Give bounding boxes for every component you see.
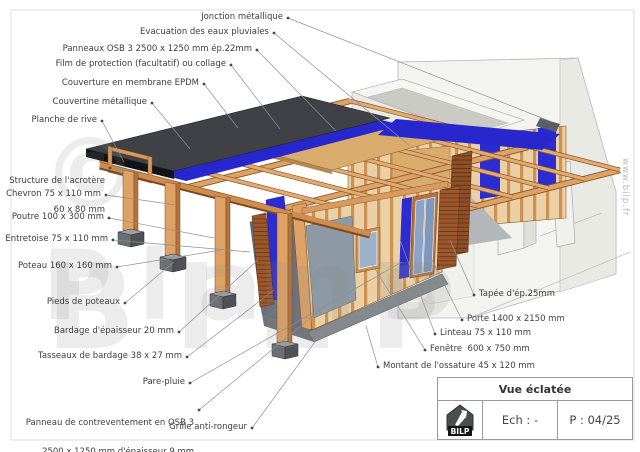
bilp-logo: BILP (438, 401, 483, 439)
label-evacuation-eaux: Evacuation des eaux pluviales (0, 28, 269, 38)
label-fenetre: Fenêtre 600 x 750 mm (430, 345, 530, 355)
label-line: 2500 x 1250 mm d'épaisseur 9 mm (0, 448, 194, 452)
post (215, 196, 226, 294)
plan-page: © Plans BILP www.bilp.fr Jonction métall… (0, 0, 640, 452)
label-planche-de-rive: Planche de rive (0, 116, 97, 126)
label-tapee: Tapée d'ép.25mm (479, 290, 555, 300)
leader-line (366, 326, 378, 367)
label-linteau: Linteau 75 x 110 mm (440, 329, 531, 339)
post (165, 182, 176, 257)
label-pare-pluie: Pare-pluie (0, 378, 185, 388)
label-montant-ossature: Montant de l'ossature 45 x 120 mm (383, 362, 535, 372)
label-poteau: Poteau 160 x 160 mm (0, 262, 112, 272)
label-porte: Porte 1400 x 2150 mm (467, 315, 565, 325)
label-panneaux-osb: Panneaux OSB 3 2500 x 1250 mm ép.22mm (0, 45, 252, 55)
label-couvertine: Couvertine métallique (0, 98, 147, 108)
label-bardage: Bardage d'épaisseur 20 mm (0, 327, 174, 337)
bardage-cladding (437, 186, 460, 270)
label-entretoise: Entretoise 75 x 110 mm (0, 235, 108, 245)
label-film-protection: Film de protection (facultatif) ou colla… (0, 60, 226, 70)
label-line: Structure de l'acrotère (0, 177, 105, 187)
label-grille-anti-rongeur: Grille anti-rongeur (0, 423, 247, 433)
post (277, 212, 288, 344)
label-tasseaux: Tasseaux de bardage 38 x 27 mm (0, 352, 182, 362)
bilp-logo-icon: BILP (445, 404, 475, 437)
leader-line (125, 262, 174, 303)
label-couverture-epdm: Couverture en membrane EPDM (0, 79, 199, 89)
drawing-title: Vue éclatée (438, 378, 632, 401)
logo-text: BILP (451, 427, 470, 436)
label-chevron: Chevron 75 x 110 mm (0, 190, 101, 200)
label-pieds-de-poteaux: Pieds de poteaux (0, 298, 120, 308)
page-number-cell: P : 04/25 (558, 401, 632, 439)
title-block: Vue éclatée BILP Ech : - P : 04/25 (437, 377, 633, 440)
scale-cell: Ech : - (483, 401, 558, 439)
label-jonction-metallique: Jonction métallique (0, 13, 283, 23)
label-poutre: Poutre 100 x 300 mm (0, 213, 104, 223)
website-watermark: www.bilp.fr (620, 158, 630, 268)
